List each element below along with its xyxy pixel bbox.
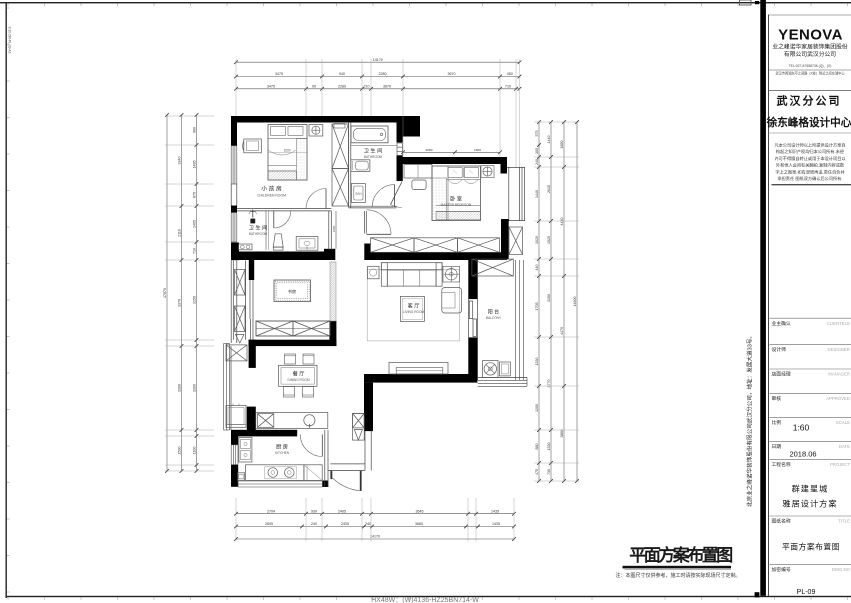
- svg-text:1500: 1500: [283, 148, 290, 152]
- svg-text:YENOVA: YENOVA: [778, 27, 843, 44]
- svg-text:1705: 1705: [535, 303, 539, 311]
- svg-text:平面方案布置图: 平面方案布置图: [782, 542, 840, 552]
- svg-text:1020: 1020: [535, 236, 539, 244]
- svg-text:2405: 2405: [341, 522, 349, 526]
- svg-text:卫 生 间: 卫 生 间: [364, 147, 382, 155]
- svg-text:2110: 2110: [177, 229, 181, 237]
- svg-text:构起之知识产权均归本公司所有.未经: 构起之知识产权均归本公司所有.未经: [776, 148, 845, 155]
- svg-text:HX48W：(W)4136-HZ25BN714-W: HX48W：(W)4136-HZ25BN714-W: [371, 597, 479, 603]
- svg-text:LIVING ROOM: LIVING ROOM: [403, 310, 425, 314]
- svg-text:1:60: 1:60: [793, 423, 810, 433]
- svg-text:1440: 1440: [535, 190, 539, 198]
- svg-text:2704: 2704: [267, 509, 275, 513]
- svg-text:14600: 14600: [573, 297, 577, 307]
- svg-text:17870: 17870: [163, 288, 167, 298]
- svg-text:3475: 3475: [275, 72, 283, 76]
- svg-text:475: 475: [535, 469, 539, 475]
- svg-text:1520: 1520: [547, 236, 551, 244]
- svg-text:MANAGER: MANAGER: [828, 372, 850, 377]
- svg-text:比例: 比例: [772, 419, 782, 426]
- svg-text:TITLE: TITLE: [838, 519, 850, 524]
- svg-text:3670: 3670: [383, 85, 391, 89]
- svg-text:平面方案布置图: 平面方案布置图: [629, 545, 732, 565]
- svg-text:承担责任 图纸双方确认后公司所有.: 承担责任 图纸双方确认后公司所有.: [777, 175, 842, 182]
- svg-text:武汉市两湖东亭之间路（X栋）附近之间东湖中心: 武汉市两湖东亭之间路（X栋）附近之间东湖中心: [775, 71, 845, 76]
- svg-text:凡本公司设计师以上所提供设计方案自: 凡本公司设计师以上所提供设计方案自: [774, 142, 845, 149]
- svg-text:240: 240: [311, 522, 317, 526]
- svg-text:575: 575: [535, 131, 539, 137]
- svg-text:3475: 3475: [267, 85, 275, 89]
- svg-text:1200: 1200: [535, 404, 539, 412]
- svg-text:DINING ROOM: DINING ROOM: [288, 378, 310, 382]
- svg-text:书房: 书房: [288, 288, 296, 295]
- svg-text:14170: 14170: [370, 535, 380, 539]
- svg-text:14170: 14170: [373, 58, 383, 62]
- svg-text:240: 240: [535, 159, 539, 165]
- svg-text:BATHROOM: BATHROOM: [364, 155, 383, 159]
- svg-text:小 孩 房: 小 孩 房: [261, 185, 282, 193]
- svg-text:PL-09: PL-09: [797, 589, 816, 596]
- svg-text:2405: 2405: [338, 509, 346, 513]
- svg-text:8-10-2W-PL-09-A3: 8-10-2W-PL-09-A3: [8, 27, 12, 54]
- svg-text:阳 台: 阳 台: [488, 309, 499, 316]
- svg-text:CLIENTELE: CLIENTELE: [827, 321, 851, 326]
- svg-text:业之峰诺华家居装饰集团股份: 业之峰诺华家居装饰集团股份: [772, 43, 848, 51]
- svg-text:卫 生 间: 卫 生 间: [249, 223, 267, 231]
- svg-text:1800: 1800: [474, 148, 481, 152]
- svg-text:加密编号: 加密编号: [772, 566, 791, 573]
- svg-text:3670: 3670: [448, 72, 456, 76]
- svg-text:APPROVED: APPROVED: [826, 396, 850, 401]
- svg-text:雅居设计方案: 雅居设计方案: [782, 499, 837, 509]
- svg-text:3340: 3340: [177, 157, 181, 165]
- svg-text:930: 930: [311, 509, 317, 513]
- svg-text:MASTER BEDROOM: MASTER BEDROOM: [441, 203, 472, 207]
- svg-text:3300: 3300: [192, 384, 196, 392]
- svg-text:880: 880: [535, 444, 539, 450]
- svg-text:3150: 3150: [192, 296, 196, 304]
- svg-text:TEL:027-87658736 (Q)、(X): TEL:027-87658736 (Q)、(X): [789, 64, 832, 68]
- svg-text:1100: 1100: [192, 447, 196, 455]
- svg-text:1850: 1850: [560, 141, 564, 149]
- svg-text:有限公司武汉分公司: 有限公司武汉分公司: [784, 50, 836, 58]
- svg-text:210: 210: [364, 85, 370, 89]
- svg-text:1330: 1330: [535, 358, 539, 366]
- svg-text:图纸名称: 图纸名称: [772, 518, 791, 525]
- svg-text:SCALE: SCALE: [836, 420, 850, 425]
- svg-text:1330: 1330: [547, 443, 551, 451]
- svg-text:2018.06: 2018.06: [789, 450, 816, 459]
- svg-text:3770: 3770: [547, 380, 551, 388]
- svg-text:1435: 1435: [492, 522, 500, 526]
- svg-text:设计师: 设计师: [772, 346, 787, 353]
- svg-text:业主确认: 业主确认: [772, 320, 791, 327]
- svg-text:武汉分公司: 武汉分公司: [777, 94, 842, 108]
- svg-text:群建星城: 群建星城: [792, 484, 829, 494]
- svg-text:710: 710: [192, 248, 196, 254]
- svg-text:审核: 审核: [772, 395, 782, 402]
- svg-text:厨 房: 厨 房: [276, 443, 288, 451]
- svg-text:3150: 3150: [547, 294, 551, 302]
- svg-text:许可不得擅自转让或用于本设计项目以: 许可不得擅自转让或用于本设计项目以: [774, 155, 846, 162]
- svg-text:1050: 1050: [332, 225, 336, 232]
- svg-text:工程名称: 工程名称: [772, 461, 791, 468]
- svg-text:KITCHEN: KITCHEN: [275, 451, 290, 455]
- svg-text:DWG.NO: DWG.NO: [832, 567, 851, 572]
- svg-text:店面经理: 店面经理: [772, 371, 791, 378]
- svg-text:DESIGNER: DESIGNER: [828, 347, 850, 352]
- svg-text:CHILDREN ROOM: CHILDREN ROOM: [257, 194, 286, 198]
- svg-text:1435: 1435: [491, 509, 499, 513]
- svg-text:3860: 3860: [560, 430, 564, 438]
- svg-text:2080: 2080: [426, 148, 433, 152]
- svg-text:2280: 2280: [379, 72, 387, 76]
- svg-text:1440: 1440: [547, 136, 551, 144]
- svg-text:960: 960: [192, 127, 196, 133]
- svg-text:外和他人会用有关翻拍.复制内容或数: 外和他人会用有关翻拍.复制内容或数: [776, 162, 845, 169]
- svg-text:北京业之峰诺华装饰股份有限公司武汉分公司，地址：发展大道33: 北京业之峰诺华装饰股份有限公司武汉分公司，地址：发展大道33号。: [746, 333, 754, 507]
- svg-text:4470: 4470: [560, 327, 564, 335]
- svg-text:2695: 2695: [265, 522, 273, 526]
- svg-text:2615: 2615: [547, 185, 551, 193]
- svg-text:卧 室: 卧 室: [450, 195, 462, 203]
- svg-text:440: 440: [535, 265, 539, 271]
- svg-text:450: 450: [507, 72, 513, 76]
- svg-text:DATE: DATE: [839, 444, 850, 449]
- svg-text:90: 90: [312, 85, 316, 89]
- svg-text:BATHROOM: BATHROOM: [249, 232, 268, 236]
- svg-text:730: 730: [547, 469, 551, 475]
- svg-text:注：本图尺寸仅供参考，施工时请按实际现场尺寸定制。: 注：本图尺寸仅供参考，施工时请按实际现场尺寸定制。: [615, 572, 740, 579]
- svg-text:305: 305: [535, 148, 539, 154]
- svg-text:1405: 1405: [192, 220, 196, 228]
- svg-text:875: 875: [192, 192, 196, 198]
- svg-text:徐东峰格设计中心: 徐东峰格设计中心: [766, 116, 851, 129]
- svg-text:日期: 日期: [772, 444, 782, 450]
- svg-text:餐 厅: 餐 厅: [293, 370, 305, 378]
- svg-text:3300: 3300: [177, 384, 181, 392]
- svg-text:4430: 4430: [560, 218, 564, 226]
- svg-text:2280: 2280: [338, 85, 346, 89]
- svg-text:3665: 3665: [415, 522, 423, 526]
- svg-text:字上之图案.如有泄密再追.责任自负并: 字上之图案.如有泄密再追.责任自负并: [775, 168, 844, 175]
- svg-text:1485: 1485: [192, 161, 196, 169]
- svg-text:240: 240: [365, 522, 371, 526]
- svg-text:710: 710: [505, 85, 511, 89]
- svg-text:940: 940: [339, 72, 345, 76]
- svg-text:BALCONY: BALCONY: [486, 316, 502, 320]
- svg-text:PROJECT: PROJECT: [830, 462, 850, 467]
- svg-text:客 厅: 客 厅: [408, 302, 420, 310]
- svg-text:1530: 1530: [177, 447, 181, 455]
- svg-text:3370: 3370: [177, 299, 181, 307]
- svg-text:3645: 3645: [416, 509, 424, 513]
